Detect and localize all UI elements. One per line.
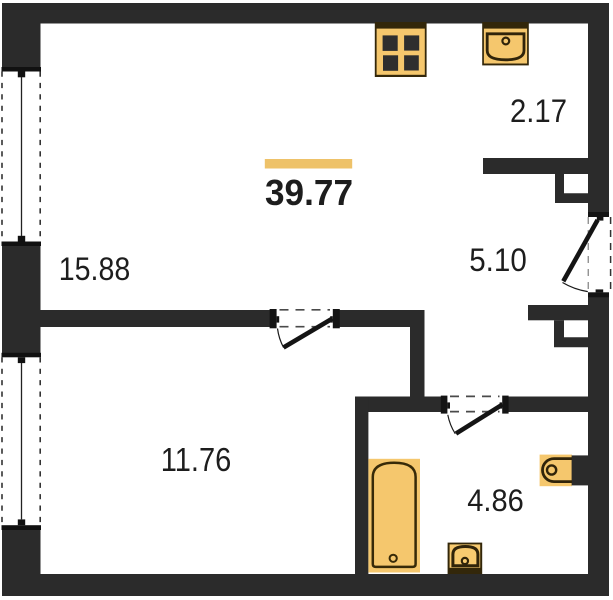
svg-text:15.88: 15.88 [59,251,131,287]
svg-text:39.77: 39.77 [265,172,353,213]
svg-text:2.17: 2.17 [510,93,567,129]
svg-text:5.10: 5.10 [469,242,527,278]
svg-text:11.76: 11.76 [161,441,232,478]
svg-text:4.86: 4.86 [467,482,524,518]
